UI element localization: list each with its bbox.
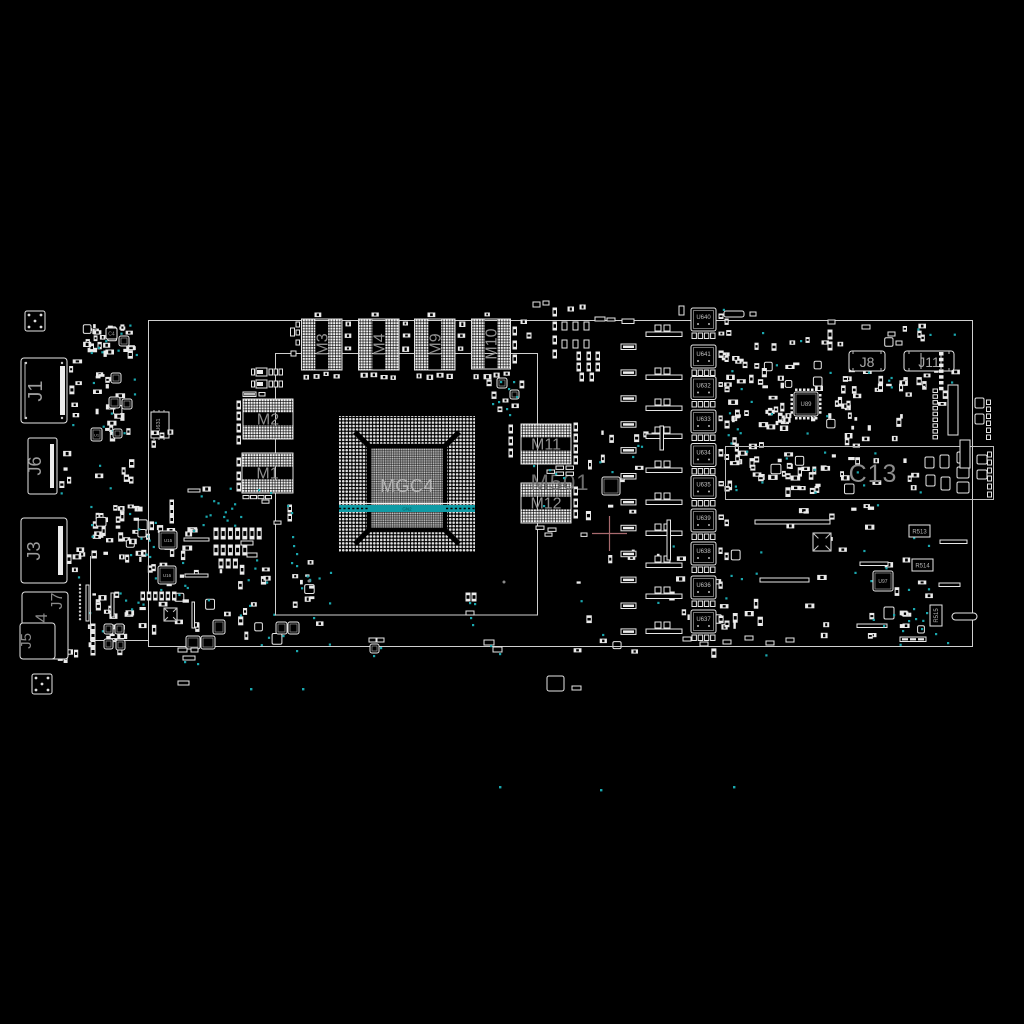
svg-text:J1: J1 — [25, 380, 47, 401]
svg-text:U637: U637 — [696, 617, 711, 623]
svg-text:M11: M11 — [531, 437, 561, 454]
svg-text:U636: U636 — [696, 583, 711, 589]
svg-text:M9: M9 — [427, 333, 444, 355]
svg-text:U639: U639 — [696, 516, 711, 522]
svg-text:U1: U1 — [94, 433, 100, 438]
svg-text:R513: R513 — [912, 530, 927, 536]
svg-text:U16: U16 — [163, 573, 172, 578]
svg-text:U641: U641 — [696, 352, 711, 358]
svg-text:J6: J6 — [25, 456, 45, 475]
svg-text:C4: C4 — [108, 332, 115, 338]
svg-text:U632: U632 — [696, 384, 711, 390]
svg-text:M2: M2 — [257, 412, 279, 429]
svg-text:R514: R514 — [915, 564, 930, 570]
svg-text:M12: M12 — [530, 496, 561, 513]
svg-text:MGC4: MGC4 — [380, 476, 434, 496]
svg-text:J11: J11 — [918, 354, 940, 370]
svg-text:J3: J3 — [24, 541, 44, 560]
svg-text:U638: U638 — [696, 549, 711, 555]
svg-text:GN2: GN2 — [402, 507, 412, 512]
svg-text:M1: M1 — [256, 466, 278, 483]
svg-text:R515: R515 — [934, 608, 940, 623]
svg-text:U640: U640 — [696, 315, 711, 321]
svg-text:U633: U633 — [696, 417, 711, 423]
svg-text:J5: J5 — [18, 633, 35, 649]
svg-text:M3: M3 — [314, 333, 331, 355]
svg-text:M10: M10 — [484, 328, 501, 359]
svg-text:U635: U635 — [696, 483, 711, 489]
svg-text:J8: J8 — [860, 354, 875, 370]
svg-text:J7: J7 — [49, 592, 66, 609]
svg-text:C13: C13 — [849, 460, 898, 488]
svg-text:U89: U89 — [800, 402, 812, 408]
svg-text:U634: U634 — [696, 451, 711, 457]
svg-text:U97: U97 — [878, 579, 887, 585]
svg-text:U631: U631 — [156, 418, 162, 431]
svg-text:U15: U15 — [164, 538, 173, 543]
svg-text:M4: M4 — [371, 333, 388, 355]
